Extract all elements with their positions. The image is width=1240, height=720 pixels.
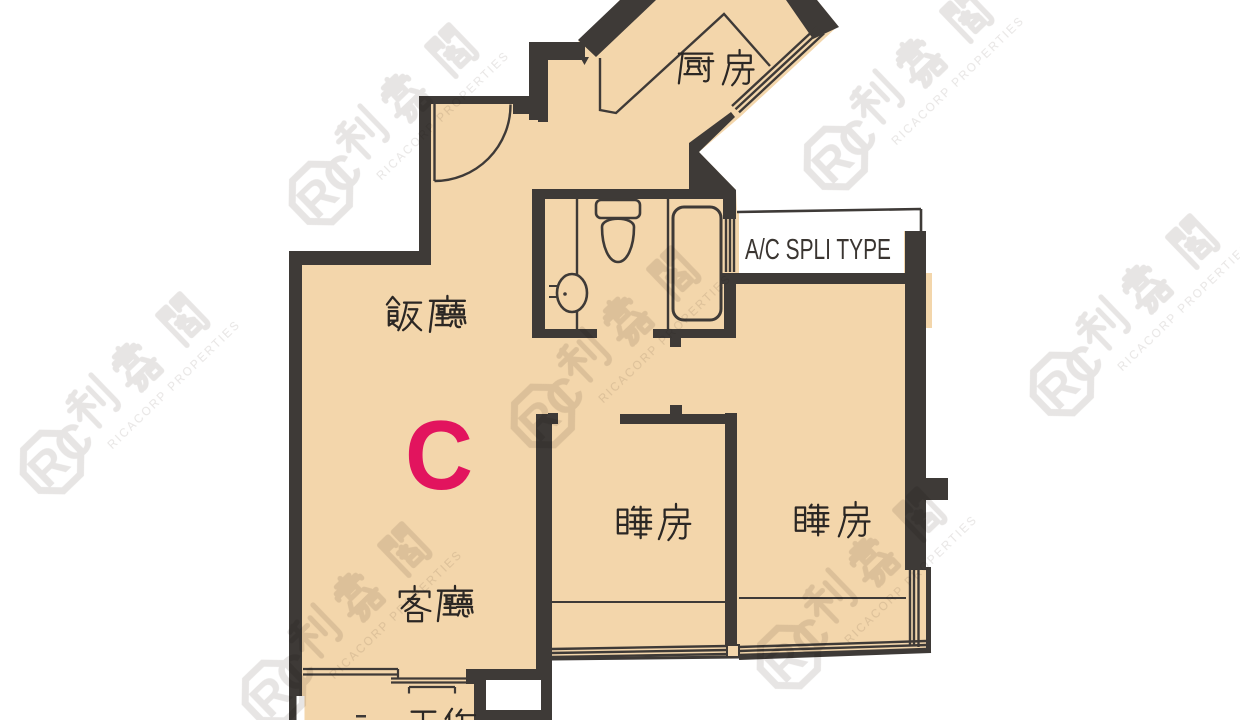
svg-text:A/C SPLI TYPE: A/C SPLI TYPE [745, 234, 891, 266]
svg-text:C: C [405, 400, 473, 510]
